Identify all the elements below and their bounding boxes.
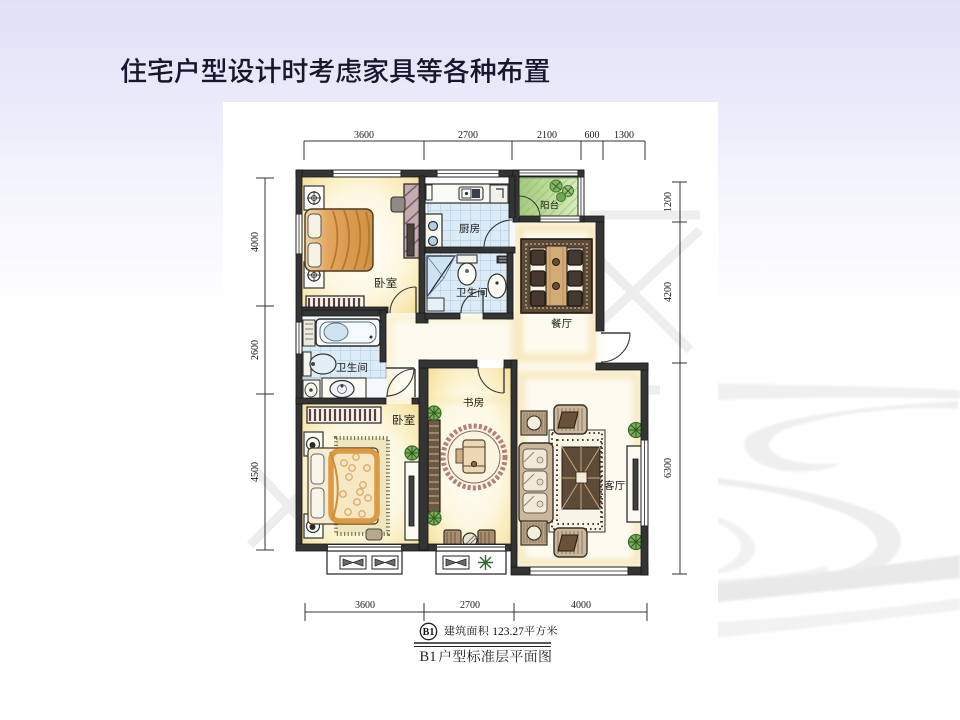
svg-text:3600: 3600: [355, 600, 375, 611]
svg-text:4200: 4200: [663, 282, 674, 302]
svg-text:B1: B1: [423, 627, 435, 638]
svg-text:2700: 2700: [458, 130, 478, 141]
svg-text:2100: 2100: [537, 130, 557, 141]
svg-text:B1: B1: [420, 649, 437, 665]
svg-text:3600: 3600: [354, 130, 374, 141]
svg-text:4500: 4500: [250, 462, 261, 482]
svg-text:1300: 1300: [614, 130, 634, 141]
svg-text:123.27: 123.27: [492, 626, 524, 638]
svg-text:4000: 4000: [571, 600, 591, 611]
svg-text:2600: 2600: [250, 340, 261, 360]
svg-text:600: 600: [585, 130, 600, 141]
svg-text:6300: 6300: [663, 458, 674, 478]
svg-text:1200: 1200: [663, 192, 674, 212]
svg-text:4000: 4000: [250, 232, 261, 252]
svg-text:2700: 2700: [460, 600, 480, 611]
